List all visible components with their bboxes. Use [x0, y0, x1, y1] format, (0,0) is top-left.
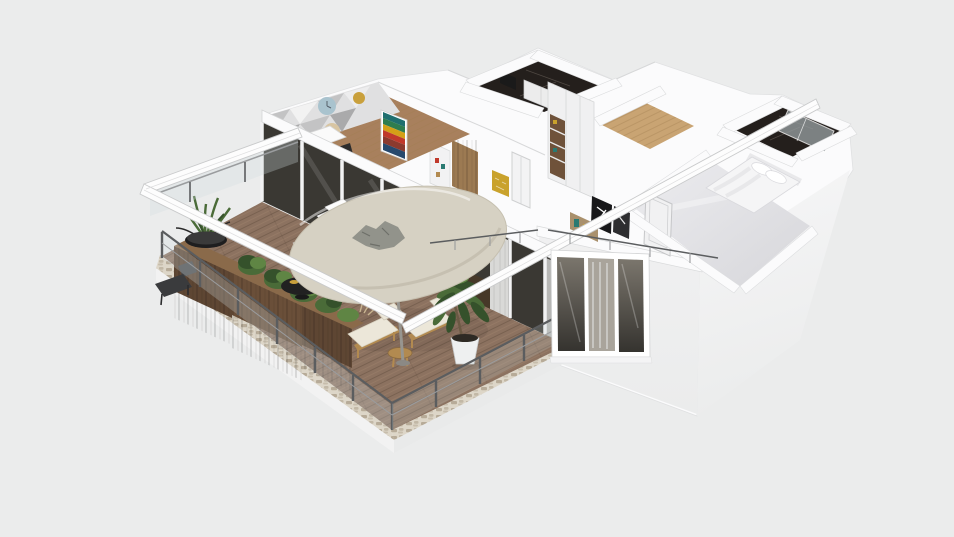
wardrobe-shelf-column — [550, 114, 565, 180]
wall-decor-mustard — [353, 92, 365, 104]
shelf-decor-teal — [553, 148, 557, 152]
window-sill — [550, 357, 652, 363]
window-pane-2 — [588, 258, 615, 351]
pot-soil — [452, 334, 478, 342]
book — [435, 158, 439, 163]
wardrobe-room — [548, 82, 594, 198]
floorplan-scene — [0, 0, 954, 537]
three-pane-window — [550, 250, 652, 363]
shelf-decor-gold — [553, 120, 557, 124]
book — [436, 172, 440, 177]
book — [441, 164, 445, 169]
floorplan-3d-viewport[interactable] — [0, 0, 954, 537]
decor-teal-vase — [574, 219, 579, 227]
window-pane-3 — [618, 259, 644, 352]
